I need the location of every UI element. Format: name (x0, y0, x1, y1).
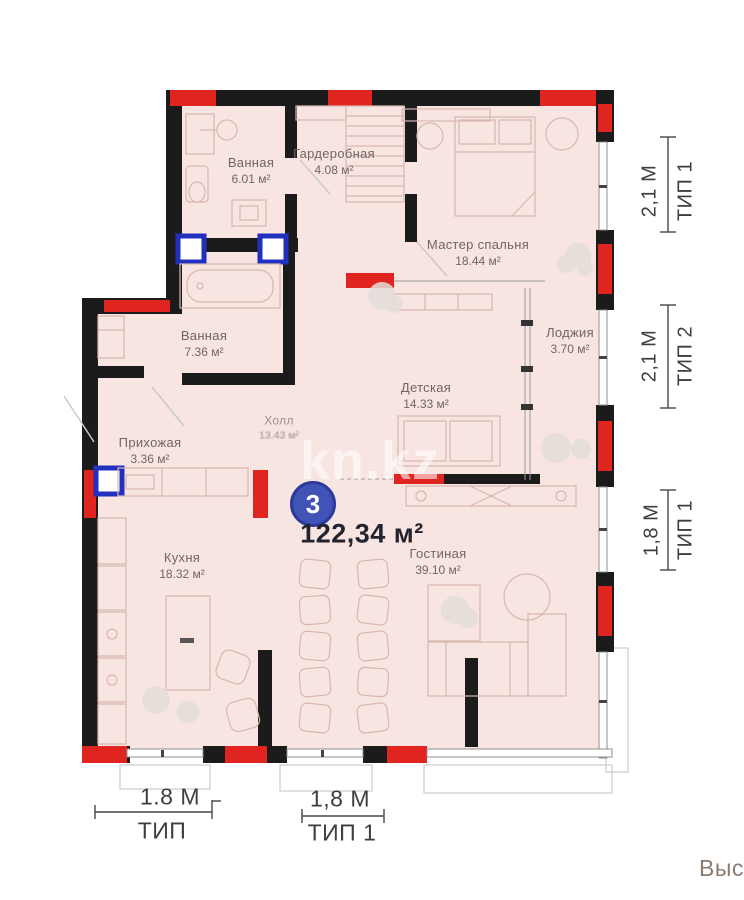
room-label-living-room: Гостиная 39.10 м² (410, 546, 467, 578)
floor-plan-drawing (0, 0, 744, 900)
dim-right-3-size: 1,8 М (641, 504, 664, 557)
dim-right-1-size: 2,1 М (639, 165, 662, 218)
room-label-bathroom-2: Ванная 7.36 м² (181, 328, 227, 360)
dim-bottom-1-type: ТИП (138, 818, 187, 845)
dim-bottom-2-type: ТИП 1 (308, 820, 377, 847)
room-area: 14.33 м² (401, 397, 451, 413)
room-name: Мастер спальня (427, 237, 529, 254)
dim-bottom-2-size: 1,8 М (310, 786, 370, 813)
room-name: Лоджия (546, 325, 594, 342)
room-name: Прихожая (119, 435, 182, 452)
room-name: Детская (401, 380, 451, 397)
room-area: 3.36 м² (119, 452, 182, 468)
room-label-kids-room: Детская 14.33 м² (401, 380, 451, 412)
room-area: 13.43 м² (259, 429, 299, 443)
room-label-master-bedroom: Мастер спальня 18.44 м² (427, 237, 529, 269)
room-area: 7.36 м² (181, 345, 227, 361)
room-area: 4.08 м² (293, 163, 375, 179)
dim-bottom-1-size: 1.8 М (140, 784, 200, 811)
room-label-wardrobe: Гардеробная 4.08 м² (293, 146, 375, 178)
total-area-label: 122,34 м² (300, 519, 424, 550)
floor-plan-page: Ванная 6.01 м² Гардеробная 4.08 м² Масте… (0, 0, 744, 900)
room-label-kitchen: Кухня 18.32 м² (159, 550, 205, 582)
room-label-hallway: Прихожая 3.36 м² (119, 435, 182, 467)
dim-right-3-type: ТИП 1 (675, 500, 698, 560)
room-name: Ванная (228, 155, 274, 172)
room-label-hall: Холл 13.43 м² (259, 413, 299, 442)
room-name: Кухня (159, 550, 205, 567)
room-name: Гардеробная (293, 146, 375, 163)
room-area: 18.44 м² (427, 254, 529, 270)
room-area: 6.01 м² (228, 172, 274, 188)
room-name: Ванная (181, 328, 227, 345)
corner-cropped-text: Выс (699, 855, 744, 882)
dim-right-1-type: ТИП 1 (675, 161, 698, 221)
dim-right-2-type: ТИП 2 (675, 326, 698, 386)
room-area: 39.10 м² (410, 563, 467, 579)
dim-right-2-size: 2,1 М (639, 330, 662, 383)
island-sink (180, 638, 194, 643)
room-label-bathroom-1: Ванная 6.01 м² (228, 155, 274, 187)
room-area: 3.70 м² (546, 342, 594, 358)
room-area: 18.32 м² (159, 567, 205, 583)
room-label-loggia: Лоджия 3.70 м² (546, 325, 594, 357)
room-name: Холл (259, 413, 299, 429)
